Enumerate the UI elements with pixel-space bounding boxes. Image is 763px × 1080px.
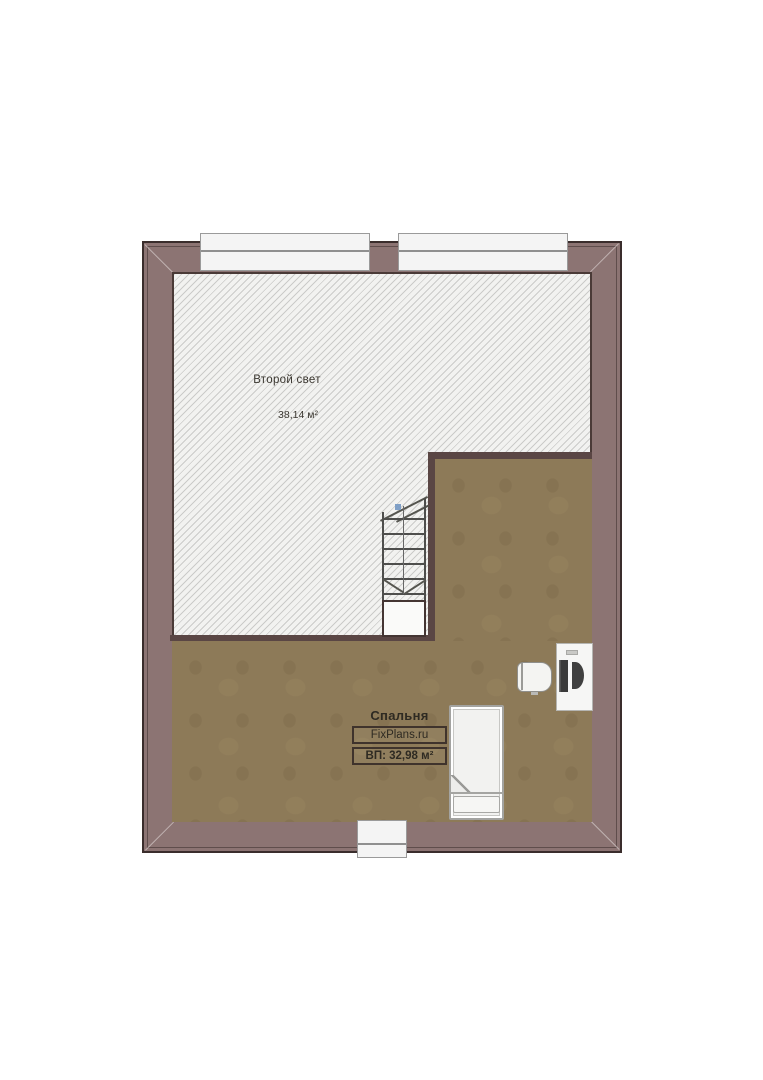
- room-area-second-light: 38,14 м²: [238, 409, 358, 421]
- stair-marker-icon: [395, 504, 401, 510]
- chair-backrest: [521, 663, 523, 690]
- room-label-bedroom: Спальня: [352, 708, 447, 723]
- floor-plan-canvas: Второй свет 38,14 м² Спальня FixPlans.ru…: [0, 0, 763, 1080]
- room-bedroom-floor: [428, 452, 592, 641]
- chair-foot: [531, 692, 538, 695]
- bed-fold-line: [449, 792, 504, 794]
- room-area-bedroom: ВП: 32,98 м²: [352, 747, 447, 765]
- stair-center-line: [403, 506, 404, 594]
- window-glass-line: [358, 843, 406, 845]
- desk-accessory: [566, 650, 578, 655]
- window-top-right: [398, 233, 568, 271]
- window-top-left: [200, 233, 370, 271]
- window-glass-line: [201, 250, 369, 252]
- bed-blanket-fold: [451, 775, 471, 793]
- watermark-fixplans: FixPlans.ru: [352, 726, 447, 744]
- stair-edge: [382, 512, 384, 600]
- computer-monitor-icon: [559, 660, 568, 692]
- bed-pillow: [453, 796, 500, 813]
- room-label-second-light: Второй свет: [227, 374, 347, 386]
- stair-landing: [382, 600, 426, 637]
- window-bottom: [357, 820, 407, 858]
- bedroom-label-group: Спальня FixPlans.ru ВП: 32,98 м²: [352, 708, 447, 765]
- window-glass-line: [399, 250, 567, 252]
